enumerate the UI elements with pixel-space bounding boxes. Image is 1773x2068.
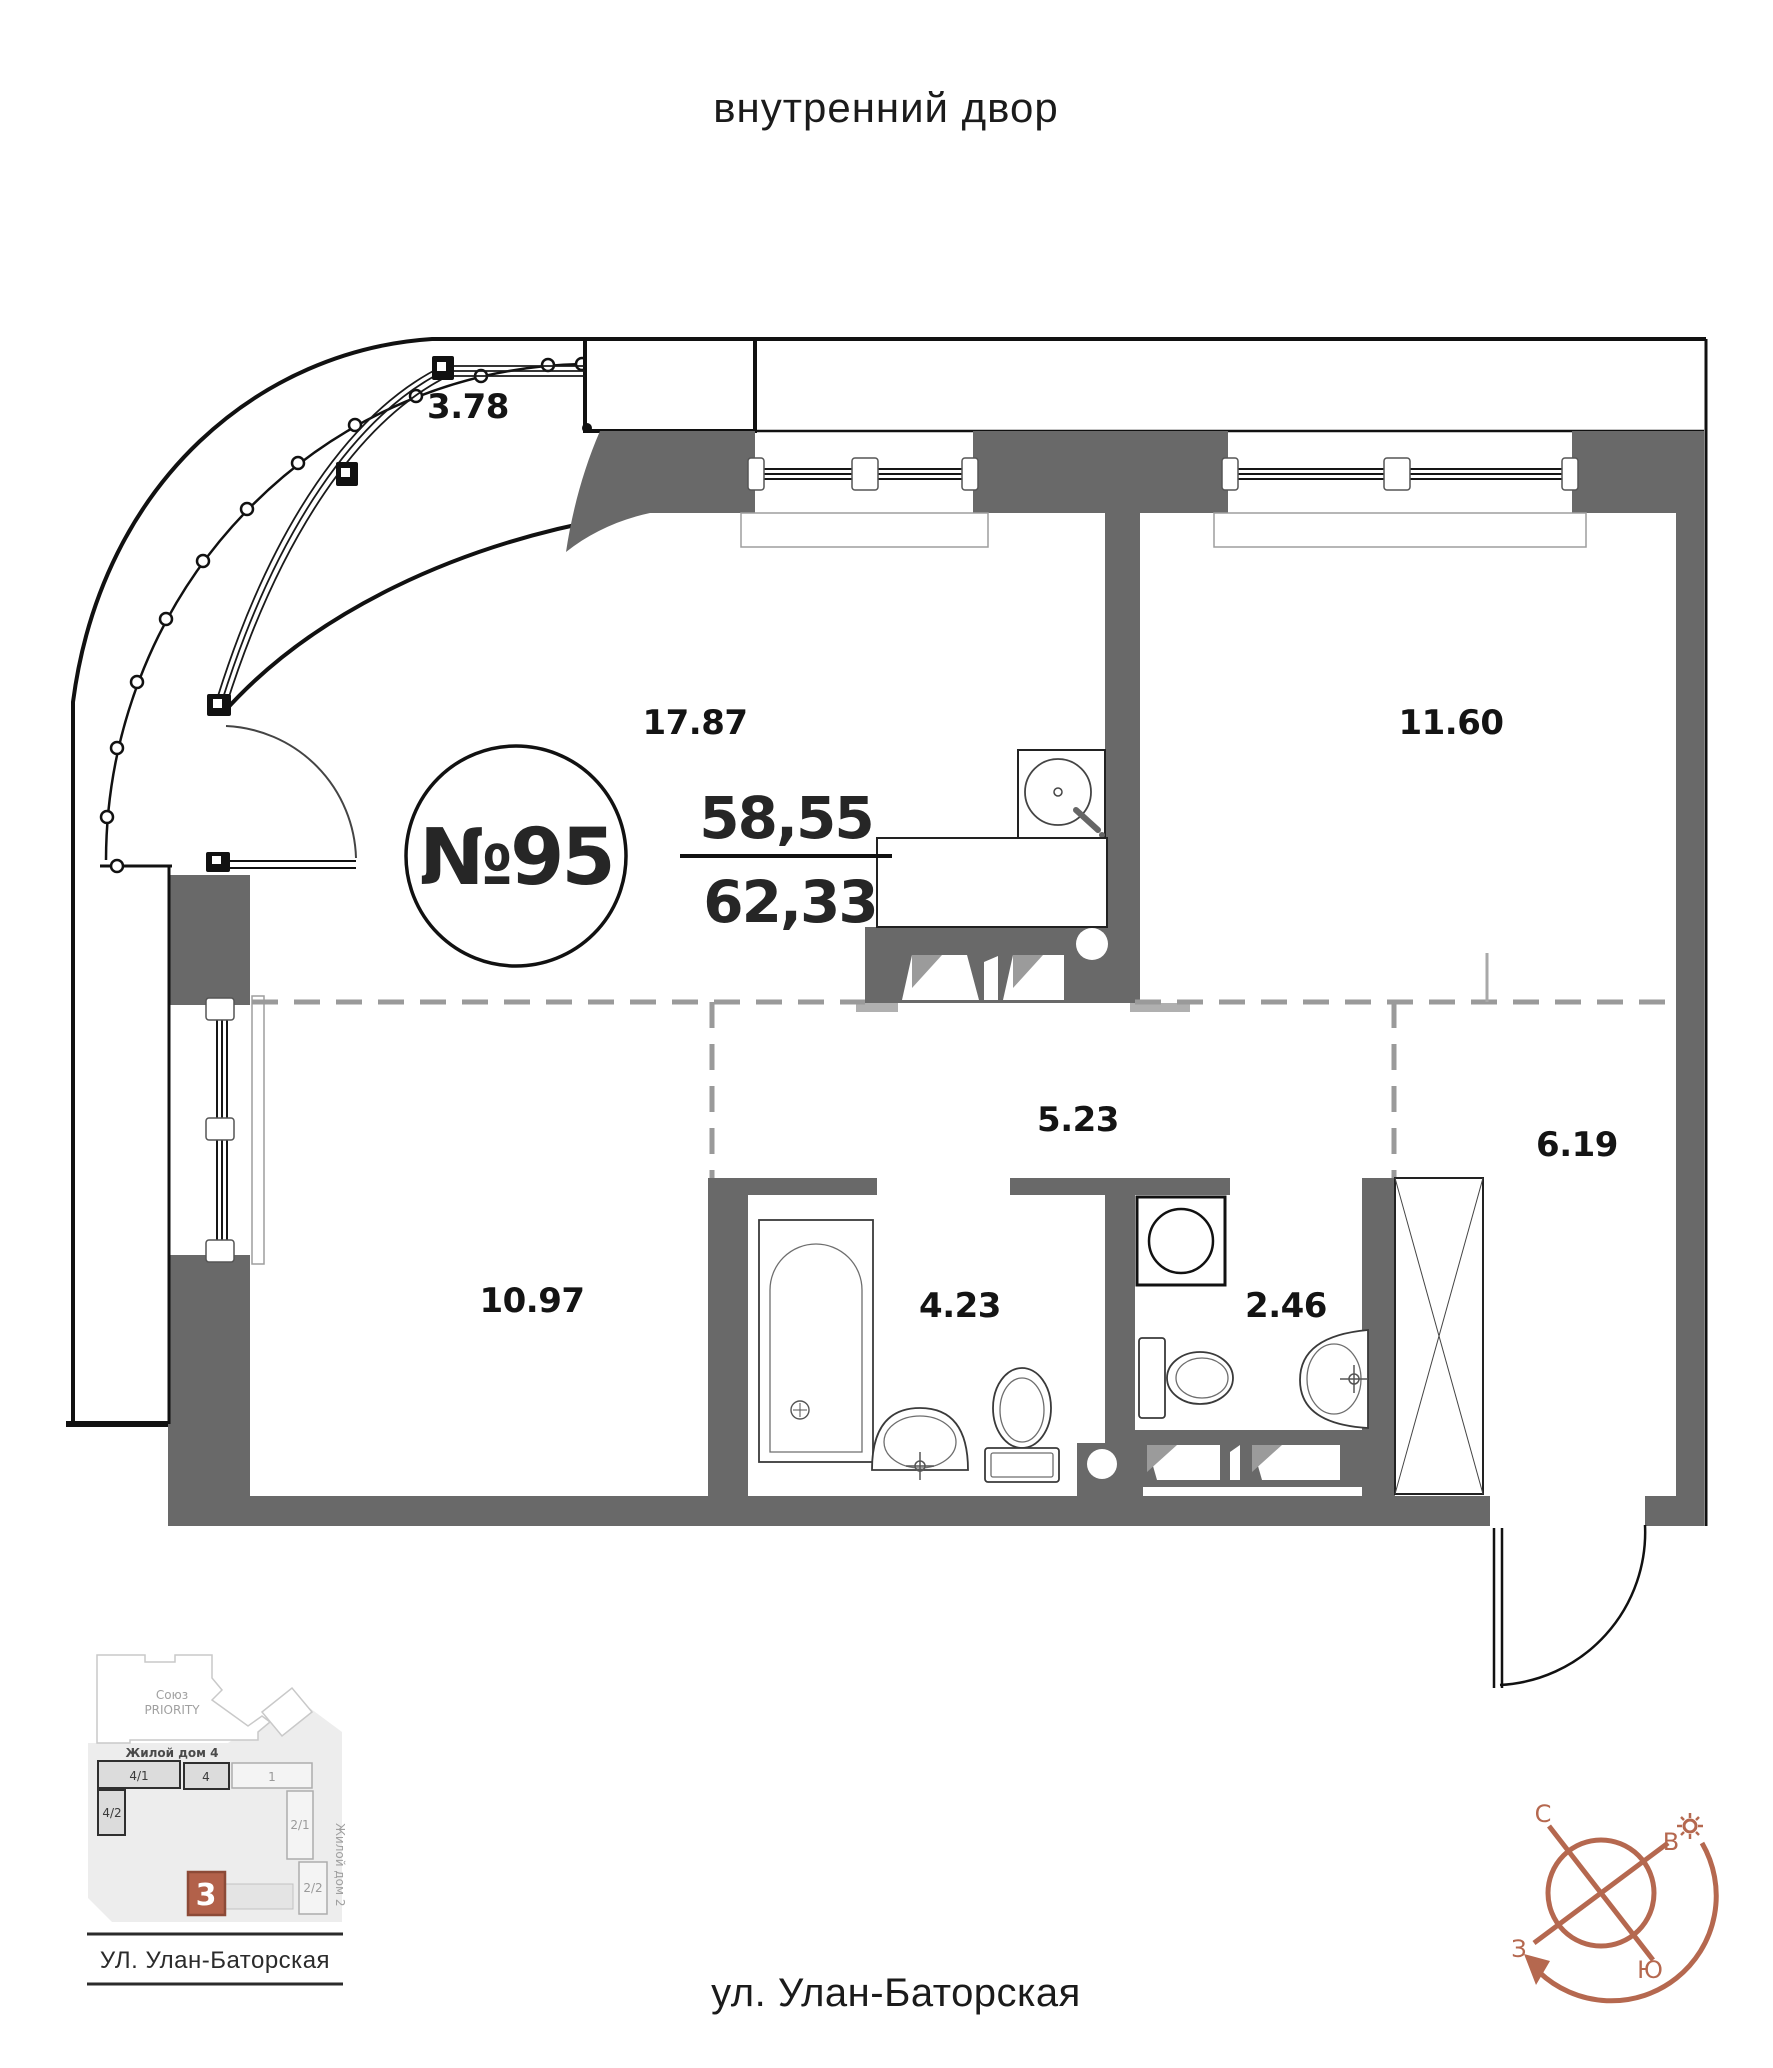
block-4-2-label: 4/2 [102, 1806, 121, 1820]
curved-inner-wall [224, 518, 610, 712]
bathroom-fixtures [759, 1220, 1059, 1482]
area-label-kitchen-living: 17.87 [642, 703, 747, 743]
kitchen-fixtures [877, 750, 1107, 927]
wc-toilet-bowl [1167, 1352, 1233, 1404]
wall-bottom [168, 1496, 1490, 1526]
total-area-value: 62,33 [703, 868, 876, 936]
block-4-1-label: 4/1 [129, 1769, 148, 1783]
zone-dashed-lines [252, 1002, 1676, 1178]
wall-left-lower [168, 1255, 250, 1526]
wall-right [1676, 513, 1704, 1496]
building4-label: Жилой дом 4 [126, 1746, 219, 1760]
area-label-room: 10.97 [479, 1281, 584, 1321]
mini-site-plan: Союз PRIORITY Жилой дом 4 4/1 4 1 4/2 2/… [87, 1655, 347, 1984]
wall-left-upper [168, 875, 250, 1005]
sun-icon [1677, 1813, 1703, 1839]
compass-north: С [1535, 1800, 1552, 1828]
wall-bath-mid [1105, 1178, 1135, 1443]
area-label-wc: 2.46 [1245, 1286, 1327, 1326]
wall-bath-top-a [708, 1178, 877, 1195]
building2-label: Жилой дом 2 [333, 1823, 347, 1907]
entrance-door [1494, 1525, 1645, 1688]
entrance-door-leaf [1494, 1528, 1502, 1688]
apartment-info: №95 58,55 62,33 [406, 746, 892, 966]
kitchen-counter [877, 838, 1107, 927]
left-window-sill [252, 996, 264, 1264]
kitchen-window-sill [741, 513, 988, 547]
balcony-door-leaf [230, 861, 356, 868]
mini-street-label: УЛ. Улан-Баторская [100, 1947, 330, 1974]
block-4-label: 4 [202, 1770, 210, 1784]
wall-top-mid [973, 431, 1228, 513]
compass-west: З [1511, 1935, 1526, 1963]
glazing-jambs [206, 356, 454, 872]
apartment-number: №95 [419, 813, 612, 903]
wall-bath-top-b [1010, 1178, 1107, 1195]
wc-toilet-cistern [1139, 1338, 1165, 1418]
current-building-label: 3 [196, 1878, 217, 1913]
bathtub [759, 1220, 873, 1462]
bathroom-toilet-bowl [993, 1368, 1051, 1448]
balcony-door-arc [226, 726, 356, 858]
floorplan-page: внутренний двор ул. Улан-Баторская [0, 0, 1773, 2068]
wall-top-left [566, 431, 755, 552]
compass-axis-we [1534, 1843, 1668, 1943]
wall-kitchen-bedroom [1105, 513, 1140, 927]
block-1-label: 1 [268, 1770, 276, 1784]
wall-top-right [1572, 431, 1704, 513]
entrance-door-arc [1500, 1525, 1645, 1685]
street-title: ул. Улан-Баторская [711, 1971, 1081, 2015]
block-2-1-label: 2/1 [290, 1818, 309, 1832]
left-window-jambs [206, 998, 234, 1262]
area-label-bathroom: 4.23 [919, 1286, 1001, 1326]
wardrobe [1395, 1178, 1483, 1494]
area-label-balcony: 3.78 [427, 387, 509, 427]
block-2-2-label: 2/2 [303, 1881, 322, 1895]
living-area-value: 58,55 [699, 784, 872, 852]
floorplan-canvas: внутренний двор ул. Улан-Баторская [0, 0, 1773, 2068]
courtyard-title: внутренний двор [713, 84, 1059, 131]
shaft-block [585, 339, 755, 431]
area-label-hallway: 5.23 [1037, 1100, 1119, 1140]
area-label-bedroom: 11.60 [1398, 703, 1503, 743]
compass-south: Ю [1637, 1956, 1663, 1984]
bedroom-window-sill [1214, 513, 1586, 547]
complex-name-line2: PRIORITY [144, 1703, 200, 1717]
block-wing [225, 1884, 293, 1909]
compass: С В З Ю [1511, 1800, 1716, 2001]
complex-name-line1: Союз [156, 1688, 188, 1702]
wall-bath-left [708, 1178, 748, 1496]
vent-shafts [856, 928, 1340, 1480]
wall-right-foot [1645, 1496, 1704, 1526]
area-label-entry-hall: 6.19 [1536, 1125, 1618, 1165]
compass-east: В [1663, 1828, 1679, 1856]
wall-wc-top [1135, 1178, 1230, 1195]
